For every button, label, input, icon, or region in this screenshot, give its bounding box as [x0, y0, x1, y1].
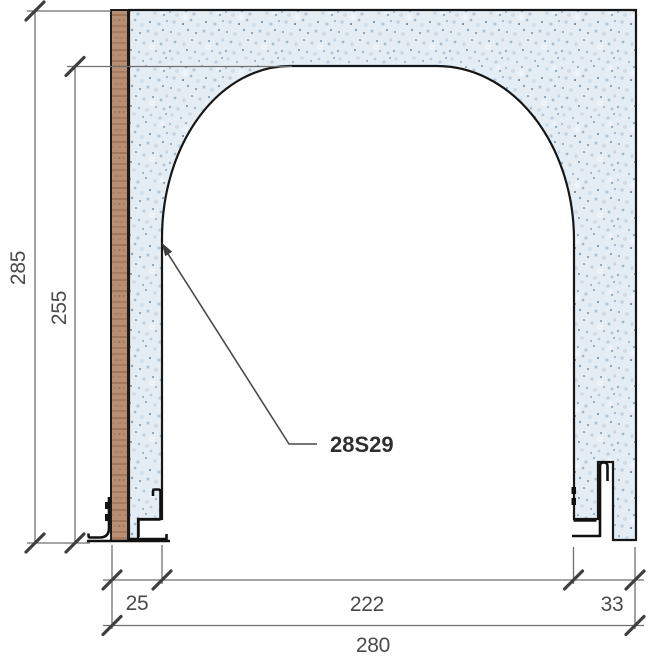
wood-stud — [111, 10, 128, 541]
leader-arrowhead — [162, 243, 173, 257]
dim-right-jamb: 33 — [601, 593, 624, 616]
dim-height-total: 285 — [7, 251, 30, 285]
leader-line — [162, 243, 318, 445]
dim-opening-width: 222 — [350, 593, 384, 616]
dim-height-opening: 255 — [48, 291, 71, 325]
dim-total-width: 280 — [356, 634, 390, 657]
section-drawing: 285 255 25 222 33 280 28S29 — [0, 0, 654, 660]
dimension-labels: 285 255 25 222 33 280 — [7, 251, 623, 657]
technical-drawing: 285 255 25 222 33 280 28S29 — [0, 0, 654, 660]
dim-left-jamb: 25 — [126, 592, 149, 615]
part-code-label: 28S29 — [330, 432, 394, 457]
concrete-wall-section — [129, 10, 636, 540]
